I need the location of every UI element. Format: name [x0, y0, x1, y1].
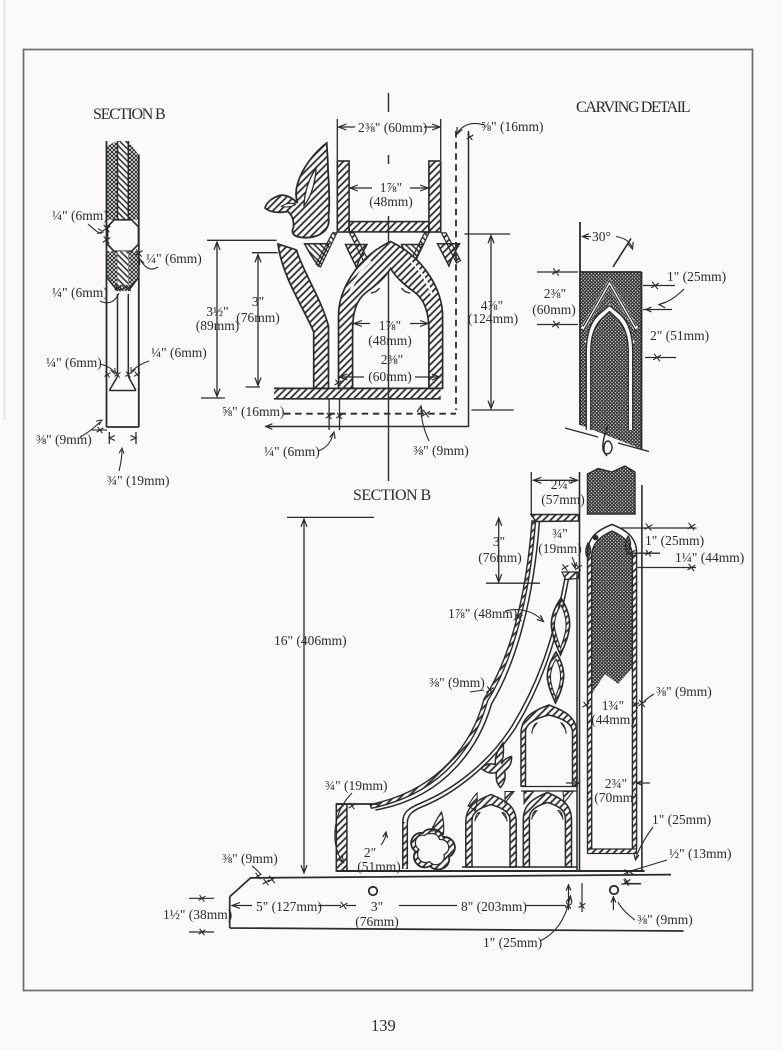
- svg-text:¼" (6mm): ¼" (6mm): [52, 208, 108, 223]
- svg-text:¼" (6mm): ¼" (6mm): [146, 251, 202, 266]
- svg-text:5" (127mm): 5" (127mm): [256, 899, 322, 914]
- svg-text:2⅜": 2⅜": [381, 352, 403, 367]
- svg-text:16" (406mm): 16" (406mm): [274, 633, 347, 648]
- svg-text:¼" (6mm): ¼" (6mm): [46, 355, 102, 370]
- svg-text:(89mm): (89mm): [196, 318, 240, 333]
- svg-text:⅜" (9mm): ⅜" (9mm): [413, 443, 469, 458]
- svg-text:(76mm): (76mm): [236, 310, 280, 325]
- svg-text:(76mm): (76mm): [478, 550, 522, 565]
- svg-text:¼" (6mm): ¼" (6mm): [264, 444, 320, 459]
- svg-text:SECTION B: SECTION B: [353, 487, 431, 504]
- svg-text:1⅞": 1⅞": [380, 180, 402, 195]
- svg-text:2⅜": 2⅜": [544, 286, 566, 301]
- svg-text:⅜" (9mm): ⅜" (9mm): [36, 432, 92, 447]
- svg-text:(19mm): (19mm): [538, 541, 582, 556]
- svg-text:2" (51mm): 2" (51mm): [650, 328, 709, 343]
- svg-text:CARVING DETAIL: CARVING DETAIL: [576, 99, 690, 116]
- svg-text:2¾": 2¾": [605, 776, 627, 791]
- svg-text:1" (25mm): 1" (25mm): [667, 269, 726, 284]
- svg-text:⅜" (9mm): ⅜" (9mm): [429, 675, 485, 690]
- svg-text:2": 2": [364, 845, 376, 860]
- svg-text:(60mm): (60mm): [532, 302, 576, 317]
- svg-text:⅜" (9mm): ⅜" (9mm): [656, 684, 712, 699]
- svg-text:(124mm): (124mm): [468, 311, 518, 326]
- svg-text:1" (25mm): 1" (25mm): [483, 935, 542, 950]
- svg-text:30°: 30°: [592, 229, 611, 244]
- svg-text:(51mm): (51mm): [357, 859, 401, 874]
- svg-text:1" (25mm): 1" (25mm): [652, 812, 711, 827]
- svg-text:(48mm): (48mm): [369, 194, 413, 209]
- svg-text:3": 3": [493, 534, 505, 549]
- svg-text:2¼": 2¼": [551, 477, 573, 492]
- svg-text:1⅞": 1⅞": [379, 318, 401, 333]
- svg-text:(70mm): (70mm): [594, 790, 638, 805]
- svg-text:3½": 3½": [206, 304, 228, 319]
- svg-text:3": 3": [371, 899, 383, 914]
- svg-text:½" (13mm): ½" (13mm): [669, 846, 732, 861]
- svg-text:⅜" (9mm): ⅜" (9mm): [222, 851, 278, 866]
- svg-text:(48mm): (48mm): [368, 333, 412, 348]
- svg-text:(76mm): (76mm): [355, 914, 399, 929]
- svg-text:¾": ¾": [552, 526, 568, 541]
- svg-text:2⅜" (60mm): 2⅜" (60mm): [358, 120, 427, 135]
- svg-text:(57mm): (57mm): [541, 492, 585, 507]
- svg-text:1⅞" (48mm): 1⅞" (48mm): [448, 606, 517, 621]
- svg-text:1¼" (44mm): 1¼" (44mm): [675, 550, 744, 565]
- svg-text:SECTION B: SECTION B: [93, 106, 165, 123]
- svg-text:⅝" (16mm): ⅝" (16mm): [481, 119, 544, 134]
- svg-text:(60mm): (60mm): [368, 369, 412, 384]
- svg-text:(44mm): (44mm): [591, 712, 635, 727]
- svg-text:8" (203mm): 8" (203mm): [461, 899, 527, 914]
- svg-text:¾" (19mm): ¾" (19mm): [107, 473, 170, 488]
- svg-text:¼" (6mm): ¼" (6mm): [52, 285, 108, 300]
- svg-text:⅝" (16mm): ⅝" (16mm): [222, 404, 285, 419]
- svg-text:¼" (6mm): ¼" (6mm): [151, 345, 207, 360]
- svg-text:1" (25mm): 1" (25mm): [645, 533, 704, 548]
- svg-text:⅜" (9mm): ⅜" (9mm): [637, 912, 693, 927]
- svg-text:3": 3": [252, 294, 264, 309]
- svg-text:1¾": 1¾": [602, 698, 624, 713]
- svg-text:¾" (19mm): ¾" (19mm): [325, 778, 388, 793]
- svg-text:1½" (38mm): 1½" (38mm): [163, 907, 232, 922]
- svg-text:139: 139: [371, 1016, 396, 1035]
